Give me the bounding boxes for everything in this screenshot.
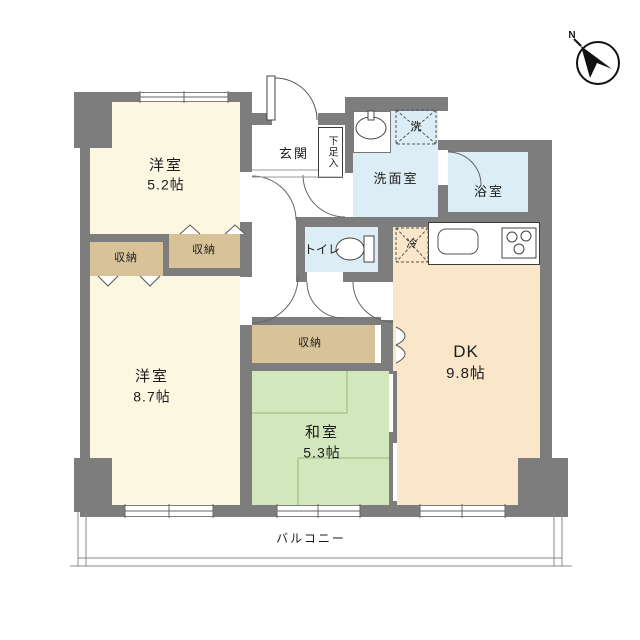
washbasin-counter [353, 111, 391, 153]
bathroom-label: 浴室 [474, 185, 504, 199]
compass-north-label: N [568, 31, 575, 42]
wall-closet-3-top [252, 317, 381, 325]
door-opening-western-1 [240, 172, 252, 222]
closet-2-label: 収納 [192, 245, 216, 257]
entrance-door-icon [267, 76, 317, 120]
room-western-1-size: 5.2帖 [147, 178, 184, 193]
door-arc-toilet [307, 282, 343, 318]
door-arc-western-1 [252, 176, 296, 220]
room-japanese-size: 5.3帖 [303, 446, 340, 461]
wall-closet-1-top [90, 234, 163, 242]
room-western-2-size: 8.7帖 [133, 390, 170, 405]
door-opening-toilet [307, 272, 343, 282]
window-western-2 [125, 506, 213, 516]
kitchen-counter [428, 222, 540, 265]
wall-closet-2-bottom [169, 268, 240, 276]
wall-left [80, 92, 90, 512]
refrigerator-space-label: 冷 [407, 239, 418, 251]
door-arc-washroom [303, 175, 345, 217]
window-japanese [277, 506, 360, 516]
floor-plan: 洋室 5.2帖 洋室 8.7帖 和室 5.3帖 DK 9.8帖 玄関 下足入 洗… [0, 0, 640, 640]
entrance-label: 玄関 [279, 147, 309, 161]
washer-space-label: 洗 [411, 122, 422, 134]
door-opening-washroom [345, 173, 353, 217]
wall-right [540, 140, 552, 512]
wall-top-washroom [345, 97, 448, 111]
wall-entrance-left [252, 113, 272, 125]
shoe-cabinet-label: 下足入 [326, 136, 336, 169]
closet-3-label: 収納 [298, 338, 322, 350]
room-japanese-label: 和室 [305, 425, 339, 441]
room-dk-size: 9.8帖 [446, 366, 486, 382]
slider-panel-1 [389, 374, 393, 432]
balcony-label: バルコニー [276, 533, 346, 546]
room-western-1-label: 洋室 [149, 158, 183, 174]
room-western-2-label: 洋室 [135, 369, 169, 385]
wall-top-bathroom [438, 140, 550, 152]
door-opening-bathroom [438, 150, 448, 185]
wall-washroom-bottom [296, 217, 448, 227]
washroom-label: 洗面室 [373, 172, 418, 186]
door-opening-western-2 [240, 277, 252, 325]
wall-closet-3-bottom [252, 363, 393, 371]
compass-icon [574, 39, 619, 84]
closet-1-label: 収納 [114, 253, 138, 265]
window-western-1 [140, 93, 228, 101]
toilet-label: トイレ [304, 244, 340, 257]
wall-bathroom-right [528, 152, 540, 212]
slider-panel-2 [393, 443, 397, 501]
door-opening-dk [381, 282, 393, 320]
bathroom-area [448, 152, 528, 212]
room-dk-label: DK [453, 343, 479, 361]
window-dk [420, 506, 505, 516]
wall-bathroom-bottom [438, 212, 540, 222]
